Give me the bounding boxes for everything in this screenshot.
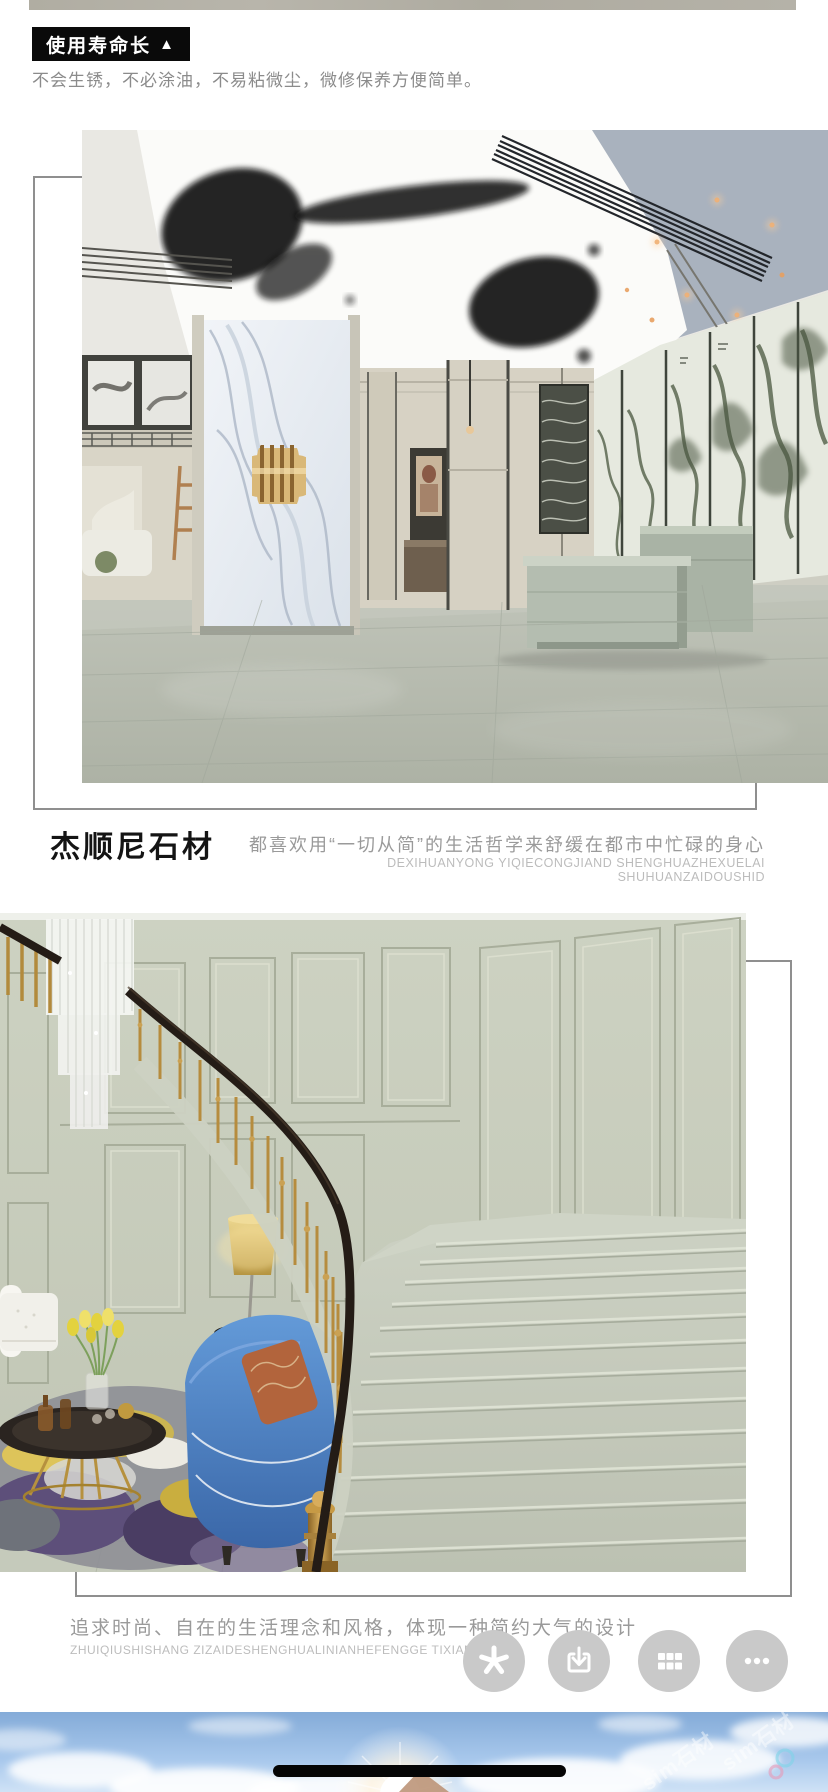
staircase-photo[interactable] <box>0 913 746 1572</box>
brand-description: 都喜欢用“一切从简”的生活哲学来舒缓在都市中忙碌的身心 <box>240 831 765 857</box>
triangle-up-icon: ▲ <box>159 36 176 53</box>
feature-description: 不会生锈，不必涂油，不易粘微尘，微修保养方便简单。 <box>32 66 482 91</box>
brand-heading: 杰顺尼石材 <box>50 822 215 866</box>
grid-icon <box>652 1644 686 1678</box>
lobby-photo[interactable] <box>82 130 828 783</box>
brand-pinyin: DEXIHUANYONG YIQIECONGJIAND SHENGHUAZHEX… <box>240 856 765 884</box>
previous-image-bottom-edge <box>29 0 796 10</box>
grid-menu-button[interactable] <box>638 1630 700 1692</box>
product-detail-page: 使用寿命长 ▲ 不会生锈，不必涂油，不易粘微尘，微修保养方便简单。 <box>0 0 828 1792</box>
feature-badge-label: 使用寿命长 <box>46 31 151 58</box>
feature-badge: 使用寿命长 ▲ <box>32 27 190 61</box>
download-button[interactable] <box>548 1630 610 1692</box>
more-button[interactable] <box>726 1630 788 1692</box>
download-icon <box>562 1644 596 1678</box>
home-indicator[interactable] <box>273 1765 566 1777</box>
ellipsis-icon <box>740 1644 774 1678</box>
asterisk-icon <box>477 1644 511 1678</box>
style-description: 追求时尚、自在的生活理念和风格，体现一种简约大气的设计 <box>70 1613 637 1640</box>
share-asterisk-button[interactable] <box>463 1630 525 1692</box>
style-pinyin: ZHUIQIUSHISHANG ZIZAIDESHENGHUALINIANHEF… <box>70 1643 512 1657</box>
